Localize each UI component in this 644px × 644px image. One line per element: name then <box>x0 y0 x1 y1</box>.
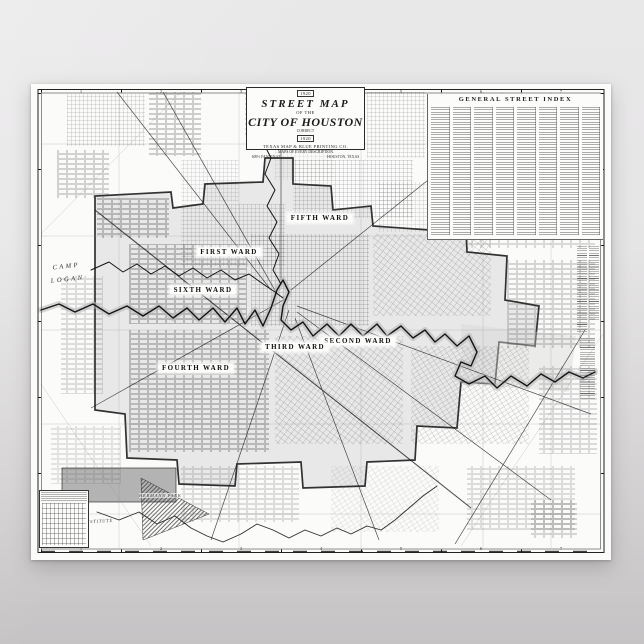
map-title-city: CITY OF HOUSTON <box>248 116 363 129</box>
border-section-number: 6 <box>480 89 482 94</box>
street-index-column <box>496 107 515 235</box>
publisher-city: HOUSTON, TEXAS <box>327 155 359 160</box>
border-section-number: 2 <box>160 546 162 551</box>
border-section-number: 7 <box>560 89 562 94</box>
houston-map-poster: 1234567 1234567 1920 STREET MAP OF THE C… <box>31 84 611 560</box>
product-photo-canvas: { "colors": { "backdrop_top": "#e9e8e9",… <box>0 0 644 644</box>
street-index-panel: GENERAL STREET INDEX <box>427 94 603 240</box>
street-index-columns <box>431 107 600 235</box>
margin-text-strip <box>589 246 599 322</box>
street-index-column <box>582 107 601 235</box>
inset-map-caption <box>41 492 87 501</box>
title-cartouche: 1920 STREET MAP OF THE CITY OF HOUSTON C… <box>246 87 365 150</box>
border-section-number: 3 <box>240 89 242 94</box>
inset-map-grid <box>42 503 86 545</box>
border-section-number: 4 <box>320 546 322 551</box>
publisher-tagline: MAPS OF EVERY DESCRIPTION <box>278 150 333 155</box>
border-section-number: 2 <box>160 89 162 94</box>
inset-map <box>39 490 89 548</box>
publisher-address-row: 609½ FANNIN ST. HOUSTON, TEXAS <box>252 155 360 160</box>
ward-label-second: SECOND WARD <box>321 337 395 345</box>
margin-text-strip <box>577 246 587 332</box>
cartouche-year: 1920 <box>297 135 314 142</box>
ward-label-first: FIRST WARD <box>197 248 261 256</box>
hermann-park-label: HERMANN PARK <box>139 493 182 498</box>
publisher-address: 609½ FANNIN ST. <box>252 155 282 160</box>
border-section-number: 7 <box>560 546 562 551</box>
street-index-title: GENERAL STREET INDEX <box>431 96 600 104</box>
border-section-number: 3 <box>240 546 242 551</box>
ward-label-sixth: SIXTH WARD <box>171 286 236 294</box>
street-index-column <box>431 107 450 235</box>
street-index-column <box>474 107 493 235</box>
border-section-number: 6 <box>480 546 482 551</box>
border-section-number: 5 <box>400 89 402 94</box>
street-index-column <box>453 107 472 235</box>
ward-label-third: THIRD WARD <box>262 343 328 351</box>
margin-text-strip <box>580 338 595 400</box>
border-numbers-bottom: 1234567 <box>41 545 601 551</box>
cartouche-year-small: 1920 <box>297 90 314 97</box>
border-section-number: 1 <box>80 89 82 94</box>
ward-label-fifth: FIFTH WARD <box>288 214 352 222</box>
street-index-column <box>539 107 558 235</box>
street-index-column <box>517 107 536 235</box>
street-index-column <box>560 107 579 235</box>
border-section-number: 5 <box>400 546 402 551</box>
map-title-line1: STREET MAP <box>261 99 349 110</box>
cartouche-note: CORRECT <box>297 129 315 134</box>
ward-label-fourth: FOURTH WARD <box>159 364 233 372</box>
